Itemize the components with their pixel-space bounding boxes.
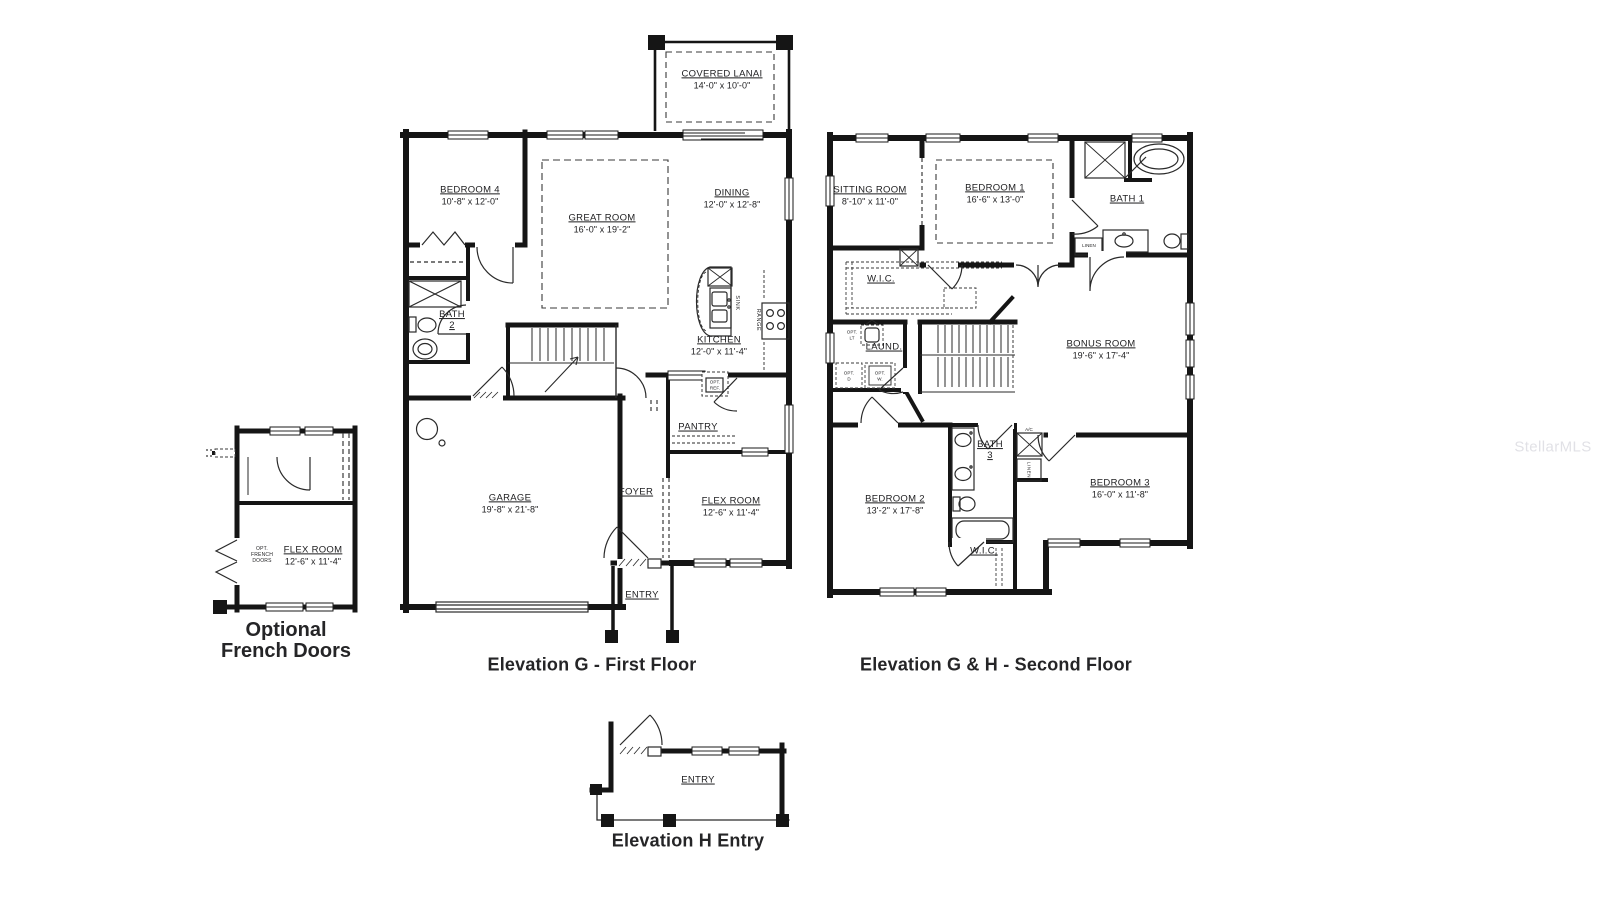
room-label-bath1: BATH 1 (1110, 195, 1144, 206)
room-name: KITCHEN (691, 335, 747, 346)
room-dims: 16'-0" x 19'-2" (568, 224, 635, 234)
opt-ref-label: OPT. REF. (710, 379, 720, 390)
room-label-covered-lanai: COVERED LANAI 14'-0" x 10'-0" (682, 69, 763, 90)
room-dims: 19'-8" x 21'-8" (482, 504, 539, 514)
room-label-bedroom4: BEDROOM 4 10'-8" x 12'-0" (440, 185, 500, 206)
opt-d-label: OPT. D (844, 370, 854, 381)
room-label-entry: ENTRY (625, 591, 659, 602)
room-label-inset-flex-room: FLEX ROOM 12'-6" x 11'-4" (284, 545, 343, 566)
room-dims: 13'-2" x 17'-8" (865, 505, 925, 515)
room-name: FOYER (619, 488, 653, 499)
room-name: BEDROOM 1 (965, 183, 1025, 194)
caption-first-floor: Elevation G - First Floor (487, 655, 696, 676)
room-dims: 12'-6" x 11'-4" (702, 507, 761, 517)
room-name: GREAT ROOM (568, 213, 635, 224)
room-label-entry-elevation: ENTRY (681, 776, 715, 787)
caption-optional-french-doors: Optional French Doors (221, 620, 351, 662)
room-name: SITTING ROOM (833, 185, 906, 196)
room-name: GARAGE (482, 493, 539, 504)
range-label: RANGE (755, 309, 761, 332)
room-name: FLEX ROOM (284, 545, 343, 556)
caption-second-floor: Elevation G & H - Second Floor (860, 655, 1132, 676)
opt-w-label: OPT. W. (875, 370, 885, 381)
room-dims: 10'-8" x 12'-0" (440, 196, 500, 206)
entry-elevation-structure (592, 724, 789, 820)
room-name: ENTRY (681, 776, 715, 787)
room-label-garage: GARAGE 19'-8" x 21'-8" (482, 493, 539, 514)
room-label-sitting-room: SITTING ROOM 8'-10" x 11'-0" (833, 185, 906, 206)
room-name: FLEX ROOM (702, 496, 761, 507)
stellar-mls-watermark: StellarMLS (1514, 439, 1591, 456)
room-name: PANTRY (678, 423, 717, 434)
opt-french-doors-note: OPT. FRENCH DOORS (251, 546, 273, 564)
room-label-bath3: BATH 3 (977, 440, 1003, 462)
room-dims: 19'-6" x 17'-4" (1067, 350, 1136, 360)
room-dims: 8'-10" x 11'-0" (833, 196, 906, 206)
room-name: BEDROOM 4 (440, 185, 500, 196)
room-label-bath2: BATH 2 (439, 310, 465, 332)
room-name: BONUS ROOM (1067, 339, 1136, 350)
room-label-great-room: GREAT ROOM 16'-0" x 19'-2" (568, 213, 635, 234)
linen-label-hall: LINEN (1027, 462, 1032, 478)
caption-entry-elevation: Elevation H Entry (612, 831, 764, 852)
room-label-flex-room: FLEX ROOM 12'-6" x 11'-4" (702, 496, 761, 517)
sink-label: SINK (734, 295, 740, 310)
room-dims: 12'-6" x 11'-4" (284, 556, 343, 566)
room-label-pantry: PANTRY (678, 423, 717, 434)
room-dims: 12'-0" x 12'-8" (704, 199, 761, 209)
room-number: 2 (439, 321, 465, 332)
room-name: W.I.C. (867, 275, 895, 286)
room-label-dining: DINING 12'-0" x 12'-8" (704, 188, 761, 209)
room-label-kitchen: KITCHEN 12'-0" x 11'-4" (691, 335, 747, 356)
room-name: COVERED LANAI (682, 69, 763, 80)
room-name: W.I.C. (970, 547, 998, 558)
floor-plan-sheet: COVERED LANAI 14'-0" x 10'-0" BEDROOM 4 … (0, 0, 1600, 899)
floor-plan-drawing (0, 0, 1600, 899)
room-label-foyer: FOYER (619, 488, 653, 499)
room-label-bonus-room: BONUS ROOM 19'-6" x 17'-4" (1067, 339, 1136, 360)
room-label-bedroom2: BEDROOM 2 13'-2" x 17'-8" (865, 494, 925, 515)
linen-label-bath1: LINEN (1082, 243, 1096, 249)
room-name: BEDROOM 2 (865, 494, 925, 505)
room-dims: 16'-0" x 11'-8" (1090, 489, 1150, 499)
second-floor-details (836, 142, 1188, 588)
room-label-laundry: LAUND. (866, 343, 903, 354)
room-dims: 16'-6" x 13'-0" (965, 194, 1025, 204)
entry-elevation-details (590, 715, 789, 827)
room-label-wic: W.I.C. (867, 275, 895, 286)
inset-details (206, 427, 349, 614)
room-name: LAUND. (866, 343, 903, 354)
room-label-bedroom1: BEDROOM 1 16'-6" x 13'-0" (965, 183, 1025, 204)
room-name: BEDROOM 3 (1090, 478, 1150, 489)
room-label-bedroom3: BEDROOM 3 16'-0" x 11'-8" (1090, 478, 1150, 499)
room-name: BATH 1 (1110, 195, 1144, 206)
ac-label: A/C (1025, 427, 1033, 433)
room-name: DINING (704, 188, 761, 199)
room-dims: 12'-0" x 11'-4" (691, 346, 747, 356)
room-number: 3 (977, 451, 1003, 462)
room-name: ENTRY (625, 591, 659, 602)
opt-lt-label: OPT. LT (847, 329, 857, 340)
room-dims: 14'-0" x 10'-0" (682, 80, 763, 90)
room-label-wic2: W.I.C. (970, 547, 998, 558)
